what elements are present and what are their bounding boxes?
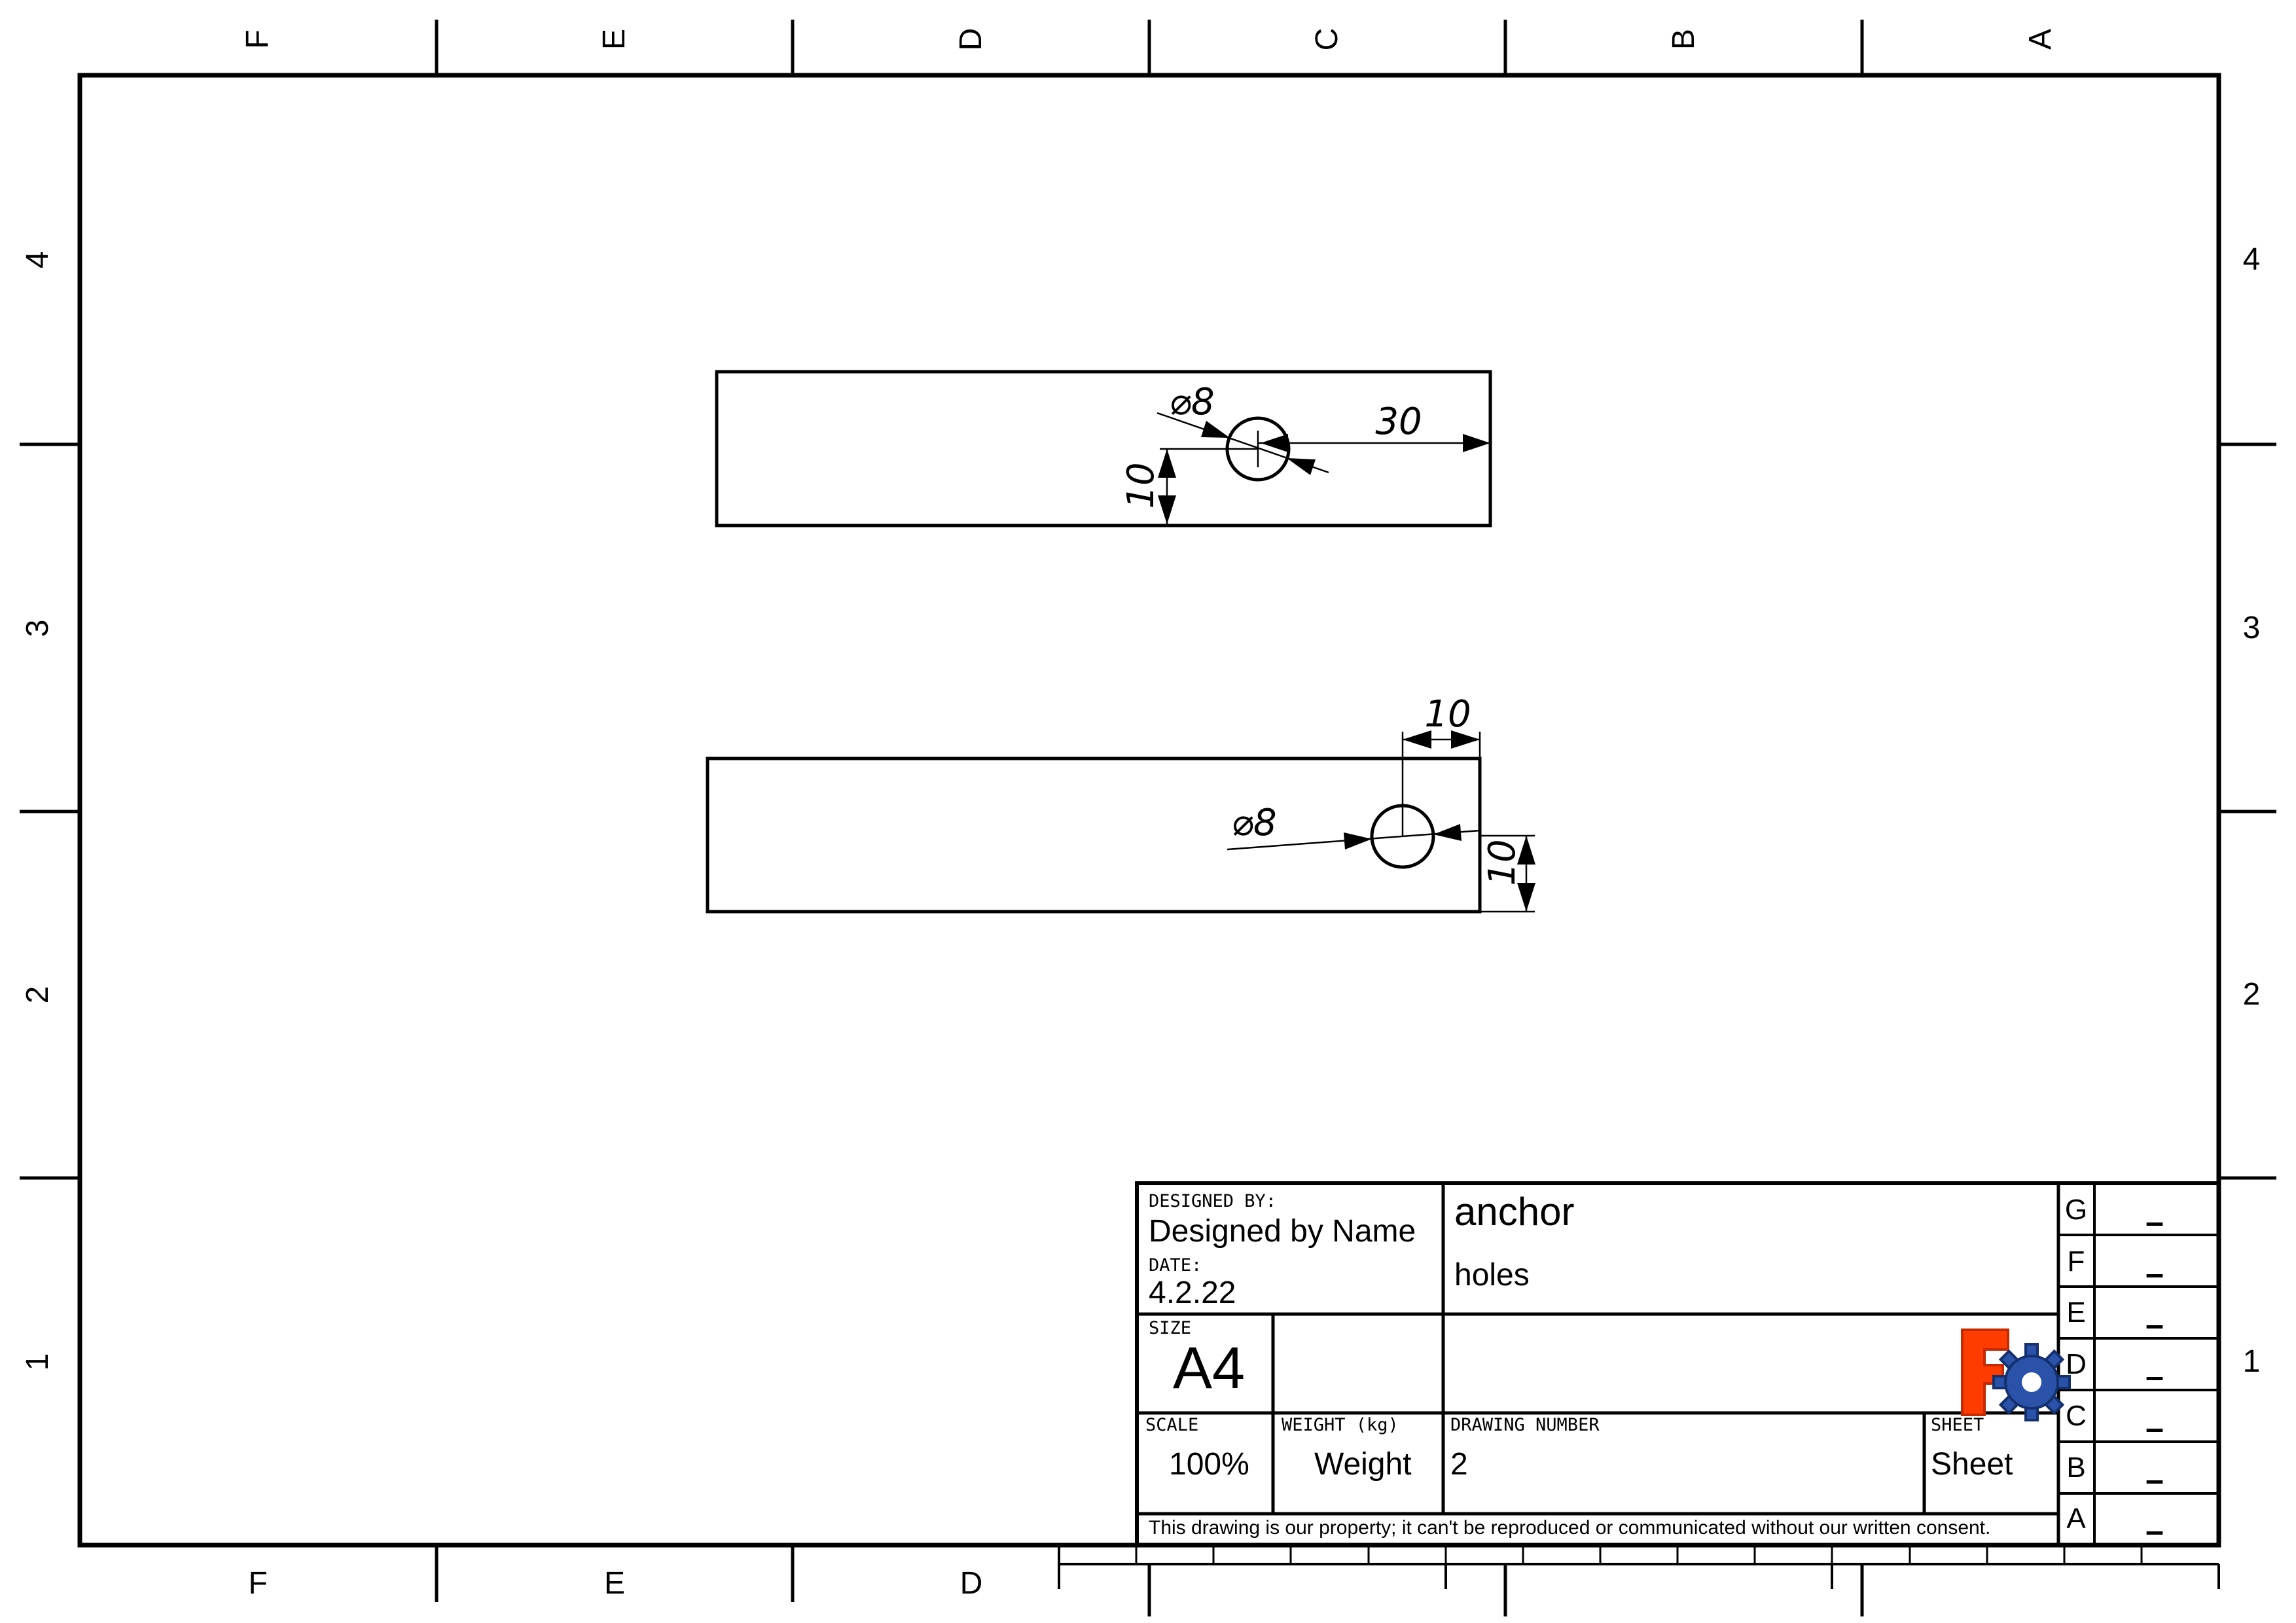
zone-right-1: 1 [2243,1346,2261,1378]
disclaimer-text: This drawing is our property; it can't b… [1149,1518,1990,1538]
zone-right-2: 2 [2243,979,2261,1010]
zone-top-c: C [1312,28,1343,51]
revision-value-g: – [2145,1205,2164,1238]
drawing-number-label: DRAWING NUMBER [1450,1416,1600,1434]
weight-value: Weight [1314,1449,1412,1480]
graduation-strip [1059,1545,2219,1589]
revision-letter-d: D [2066,1350,2087,1379]
top-height-dim: 10 [1484,839,1521,885]
revision-value-c: – [2145,1412,2164,1444]
freecad-f-icon [1962,1330,2008,1415]
sheet-value: Sheet [1931,1449,2013,1480]
revision-letter-c: C [2066,1402,2087,1431]
zone-top-e: E [599,29,630,50]
top-offset-dim: 10 [1424,696,1471,733]
zone-top-f: F [242,29,274,48]
zone-left-4: 4 [22,251,54,269]
front-hole-diameter-dim: ⌀8 [1169,384,1214,421]
drawing-number-value: 2 [1450,1449,1468,1480]
freecad-gear-icon [1994,1344,2070,1420]
zone-ticks-top [437,20,1862,75]
revision-value-e: – [2145,1308,2164,1341]
view-front [717,372,1490,526]
weight-label: WEIGHT (kg) [1282,1416,1399,1434]
size-label: SIZE [1149,1319,1191,1337]
zone-ticks-right [2219,444,2276,1178]
front-height-dim: 10 [1123,462,1160,508]
scale-value: 100% [1169,1449,1249,1480]
zone-ticks-bottom [437,1545,1862,1616]
revision-value-b: – [2145,1463,2164,1496]
zone-ticks-left [20,444,80,1178]
size-value: A4 [1173,1339,1245,1398]
zone-top-b: B [1668,29,1700,50]
zone-bottom-d: D [960,1568,983,1599]
zone-top-d: D [956,28,987,51]
revision-value-f: – [2145,1257,2164,1290]
zone-left-3: 3 [22,620,54,637]
zone-top-a: A [2025,29,2056,50]
drawing-title: anchor [1454,1192,1574,1232]
designed-by-label: DESIGNED BY: [1149,1192,1276,1210]
revision-value-d: – [2145,1360,2164,1393]
zone-right-4: 4 [2243,244,2261,276]
zone-bottom-f: F [248,1568,267,1599]
sheet-linework [0,0,2296,1623]
part-outline-top [708,758,1480,912]
top-hole-diameter-dim: ⌀8 [1231,805,1276,842]
date-value: 4.2.22 [1149,1277,1236,1309]
revision-letter-b: B [2066,1454,2085,1482]
zone-bottom-e: E [604,1568,625,1599]
revision-letter-e: E [2066,1298,2085,1327]
view-top [708,732,1535,912]
drawing-subtitle: holes [1454,1260,1530,1291]
zone-left-2: 2 [22,986,54,1004]
freecad-logo [1962,1330,2070,1420]
date-label: DATE: [1149,1257,1202,1274]
revision-letter-a: A [2066,1505,2085,1533]
zone-left-1: 1 [22,1353,54,1371]
revision-value-a: – [2145,1514,2164,1547]
designed-by-value: Designed by Name [1149,1216,1416,1247]
part-outline-front [717,372,1490,526]
sheet-label: SHEET [1931,1416,1984,1434]
front-width-dim: 30 [1375,404,1422,440]
scale-label: SCALE [1145,1416,1198,1434]
revision-letter-g: G [2065,1196,2087,1224]
drawing-sheet: F E D C B A F E D 4 3 2 1 4 3 2 1 ⌀8 30 … [0,0,2296,1623]
revision-letter-f: F [2068,1247,2085,1276]
zone-right-3: 3 [2243,613,2261,644]
